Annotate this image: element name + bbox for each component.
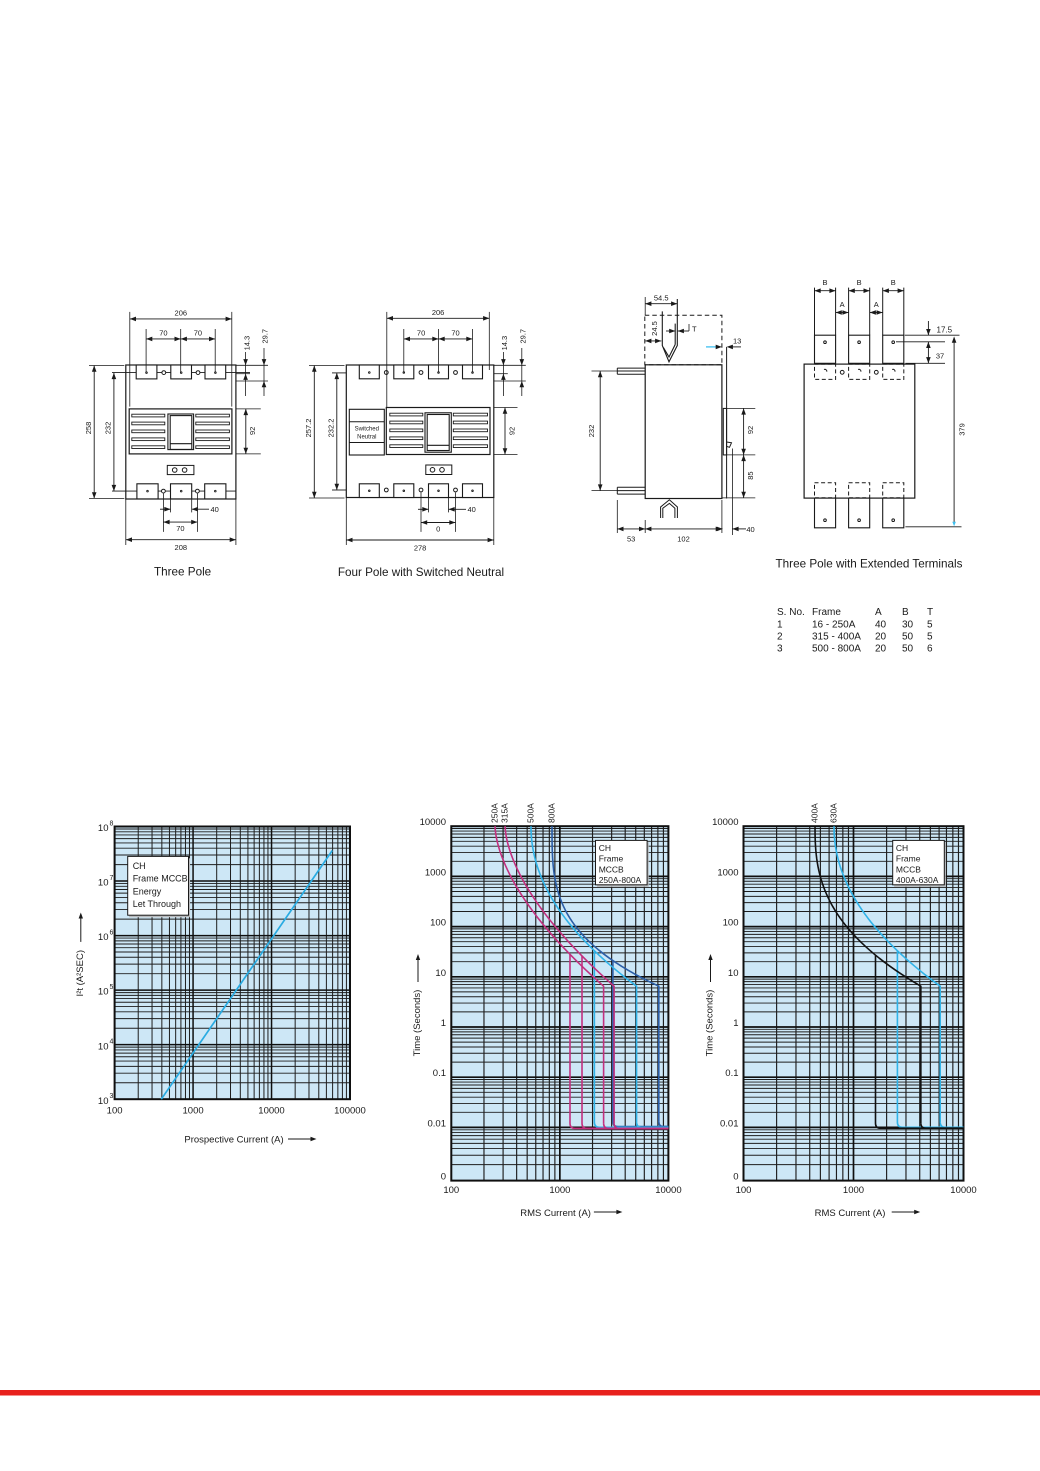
svg-text:RMS Current (A): RMS Current (A) [815,1208,886,1219]
svg-text:100000: 100000 [334,1106,366,1117]
svg-text:4: 4 [110,1039,114,1046]
svg-text:10: 10 [98,823,109,834]
svg-text:0.1: 0.1 [725,1068,738,1079]
svg-text:92: 92 [507,427,516,435]
svg-text:37: 37 [936,352,944,361]
svg-text:29.7: 29.7 [518,329,527,344]
svg-text:232: 232 [587,425,596,438]
svg-text:1000: 1000 [717,867,738,878]
svg-text:70: 70 [194,329,202,338]
svg-text:A: A [840,300,845,309]
svg-text:5: 5 [110,984,114,991]
svg-text:315A: 315A [500,803,510,823]
svg-text:70: 70 [417,329,425,338]
svg-text:400A: 400A [810,803,820,823]
svg-text:100: 100 [430,918,446,929]
svg-text:232.2: 232.2 [327,419,336,438]
svg-text:30: 30 [902,620,914,631]
svg-text:Switched: Switched [355,426,379,432]
svg-text:Let Through: Let Through [133,899,181,909]
svg-text:250A: 250A [490,803,500,823]
svg-text:206: 206 [175,309,188,318]
svg-text:1000: 1000 [183,1106,204,1117]
svg-text:Time (Seconds): Time (Seconds) [705,990,716,1057]
svg-text:CH: CH [896,843,908,853]
svg-text:T: T [927,607,933,618]
svg-text:S. No.: S. No. [777,607,805,618]
svg-text:13: 13 [733,336,741,345]
svg-text:258: 258 [84,422,93,435]
svg-text:0: 0 [436,525,440,534]
svg-text:1000: 1000 [843,1185,864,1196]
svg-text:1: 1 [733,1018,738,1029]
svg-text:10: 10 [435,968,446,979]
svg-text:16 - 250A: 16 - 250A [812,620,856,631]
svg-text:1000: 1000 [425,867,446,878]
svg-text:206: 206 [432,308,445,317]
svg-text:257.2: 257.2 [304,419,313,438]
svg-text:315 - 400A: 315 - 400A [812,632,861,643]
svg-text:RMS Current (A): RMS Current (A) [520,1208,591,1219]
svg-text:54.5: 54.5 [654,294,669,303]
svg-text:10000: 10000 [420,817,446,828]
svg-text:40: 40 [746,525,754,534]
svg-text:0: 0 [733,1172,738,1183]
svg-text:70: 70 [159,329,167,338]
svg-text:A: A [874,300,879,309]
svg-text:Frame: Frame [896,854,921,864]
svg-text:Frame: Frame [812,607,841,618]
svg-text:5: 5 [927,620,933,631]
svg-text:10000: 10000 [712,817,738,828]
svg-text:B: B [891,278,896,287]
svg-text:Time (Seconds): Time (Seconds) [412,990,423,1057]
svg-text:24.5: 24.5 [650,321,659,336]
svg-text:278: 278 [414,544,427,553]
svg-text:379: 379 [958,423,967,436]
svg-text:0.1: 0.1 [433,1068,446,1079]
svg-text:10: 10 [98,932,109,943]
svg-text:7: 7 [110,875,114,882]
svg-text:0.01: 0.01 [720,1118,739,1129]
svg-text:50: 50 [902,644,914,655]
svg-text:2: 2 [777,632,783,643]
svg-text:92: 92 [746,426,755,434]
svg-text:92: 92 [248,427,257,435]
svg-text:1000: 1000 [549,1185,570,1196]
svg-text:MCCB: MCCB [599,864,624,874]
svg-text:6: 6 [927,644,933,655]
svg-text:100: 100 [723,918,739,929]
svg-text:1: 1 [777,620,783,631]
svg-text:17.5: 17.5 [937,325,953,334]
svg-text:40: 40 [468,505,476,514]
svg-text:40: 40 [211,505,219,514]
svg-text:70: 70 [176,524,184,533]
svg-text:53: 53 [627,535,635,544]
svg-text:B: B [857,278,862,287]
svg-text:10: 10 [728,968,739,979]
svg-text:100: 100 [443,1185,459,1196]
svg-text:5: 5 [927,632,933,643]
svg-text:100: 100 [736,1185,752,1196]
svg-text:Energy: Energy [133,886,162,896]
svg-text:B: B [822,278,827,287]
svg-text:T: T [692,325,697,334]
svg-text:I²t (A²SEC): I²t (A²SEC) [75,950,86,996]
svg-text:50: 50 [902,632,914,643]
svg-text:10: 10 [98,878,109,889]
svg-text:232: 232 [104,422,113,435]
svg-text:208: 208 [175,543,188,552]
svg-text:3: 3 [777,644,783,655]
svg-text:B: B [902,607,909,618]
svg-text:Four Pole with Switched Neutra: Four Pole with Switched Neutral [338,566,504,579]
svg-text:85: 85 [746,471,755,479]
svg-text:Three Pole: Three Pole [154,566,211,579]
svg-text:Frame MCCB: Frame MCCB [133,874,188,884]
svg-text:250A-800A: 250A-800A [599,875,642,885]
svg-text:14.3: 14.3 [242,336,251,351]
svg-text:A: A [875,607,882,618]
svg-text:800A: 800A [547,803,557,823]
svg-text:14.3: 14.3 [500,336,509,351]
svg-text:8: 8 [110,820,114,827]
svg-text:40: 40 [875,620,887,631]
svg-text:MCCB: MCCB [896,864,921,874]
svg-text:20: 20 [875,632,887,643]
svg-text:500A: 500A [526,803,536,823]
svg-text:Prospective Current (A): Prospective Current (A) [184,1135,283,1146]
svg-text:102: 102 [677,535,690,544]
svg-text:Frame: Frame [599,854,624,864]
svg-text:29.7: 29.7 [261,329,270,344]
svg-text:400A-630A: 400A-630A [896,875,939,885]
svg-text:CH: CH [133,861,146,871]
svg-text:CH: CH [599,843,611,853]
svg-text:100: 100 [107,1106,123,1117]
svg-text:10000: 10000 [950,1185,976,1196]
svg-text:630A: 630A [829,803,839,823]
svg-text:Neutral: Neutral [357,434,376,440]
svg-text:10: 10 [98,987,109,998]
svg-text:500 - 800A: 500 - 800A [812,644,861,655]
svg-text:Three Pole with Extended Termi: Three Pole with Extended Terminals [776,558,963,571]
svg-text:70: 70 [451,329,459,338]
svg-text:0: 0 [441,1172,446,1183]
svg-text:6: 6 [110,929,114,936]
svg-text:10: 10 [98,1041,109,1052]
svg-text:1: 1 [441,1018,446,1029]
svg-text:0.01: 0.01 [428,1118,447,1129]
svg-text:3: 3 [110,1093,114,1100]
svg-text:10000: 10000 [258,1106,284,1117]
svg-text:20: 20 [875,644,887,655]
svg-text:10000: 10000 [655,1185,681,1196]
